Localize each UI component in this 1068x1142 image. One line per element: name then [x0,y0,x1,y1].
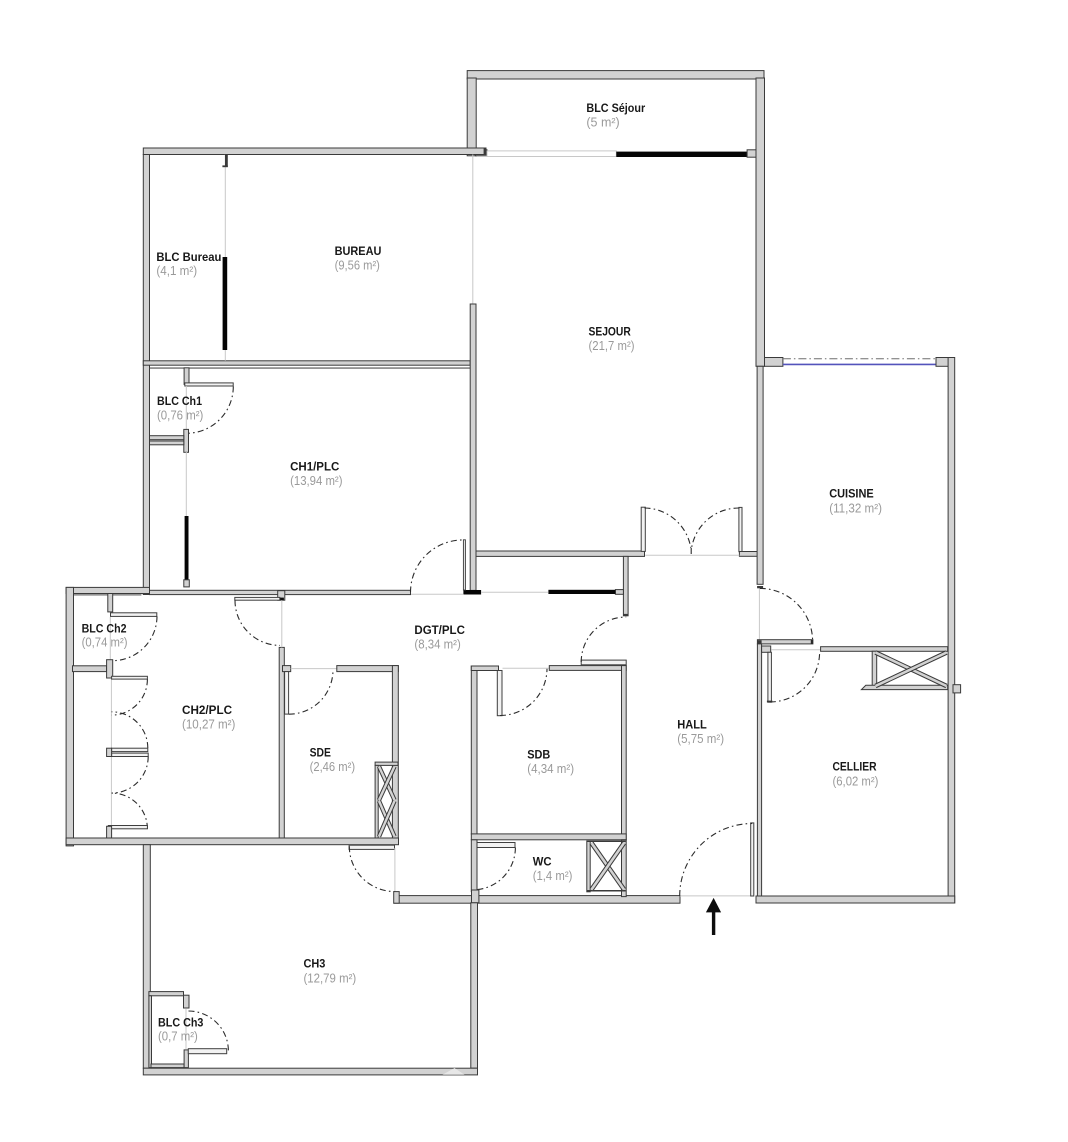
svg-text:(8,34 m²): (8,34 m²) [414,636,460,651]
svg-text:(11,32 m²): (11,32 m²) [829,500,882,515]
svg-text:(13,94 m²): (13,94 m²) [290,473,342,488]
svg-text:BLC Ch3: BLC Ch3 [158,1015,203,1029]
svg-text:BLC Ch2: BLC Ch2 [82,621,127,635]
svg-text:(6,02 m²): (6,02 m²) [833,773,879,788]
svg-text:(0,7 m²): (0,7 m²) [158,1028,198,1043]
svg-text:(21,7 m²): (21,7 m²) [589,338,635,353]
svg-text:DGT/PLC: DGT/PLC [414,623,465,637]
svg-text:CELLIER: CELLIER [833,760,877,774]
svg-text:(5,75 m²): (5,75 m²) [677,731,724,746]
svg-text:(0,76 m²): (0,76 m²) [157,407,203,422]
svg-text:CH3: CH3 [304,957,326,971]
svg-text:(4,34 m²): (4,34 m²) [527,761,574,776]
svg-text:CH2/PLC: CH2/PLC [182,703,232,717]
svg-text:(10,27 m²): (10,27 m²) [182,717,235,732]
svg-text:CUISINE: CUISINE [829,487,874,501]
svg-text:CH1/PLC: CH1/PLC [290,459,339,473]
svg-text:SDB: SDB [527,747,550,761]
svg-text:(0,74 m²): (0,74 m²) [82,634,128,649]
svg-text:BLC Bureau: BLC Bureau [156,250,221,264]
svg-text:BUREAU: BUREAU [335,244,382,258]
svg-text:WC: WC [533,855,552,869]
svg-text:BLC Ch1: BLC Ch1 [157,394,202,408]
svg-text:SEJOUR: SEJOUR [589,324,631,338]
svg-text:(5 m²): (5 m²) [586,115,619,130]
svg-text:SDE: SDE [310,746,331,760]
svg-text:(2,46 m²): (2,46 m²) [310,759,356,774]
svg-text:BLC Séjour: BLC Séjour [586,101,645,115]
svg-text:(12,79 m²): (12,79 m²) [304,970,357,985]
svg-text:(9,56 m²): (9,56 m²) [335,258,380,273]
svg-text:HALL: HALL [677,717,707,731]
svg-text:(4,1 m²): (4,1 m²) [156,263,197,278]
svg-text:(1,4 m²): (1,4 m²) [533,868,573,883]
